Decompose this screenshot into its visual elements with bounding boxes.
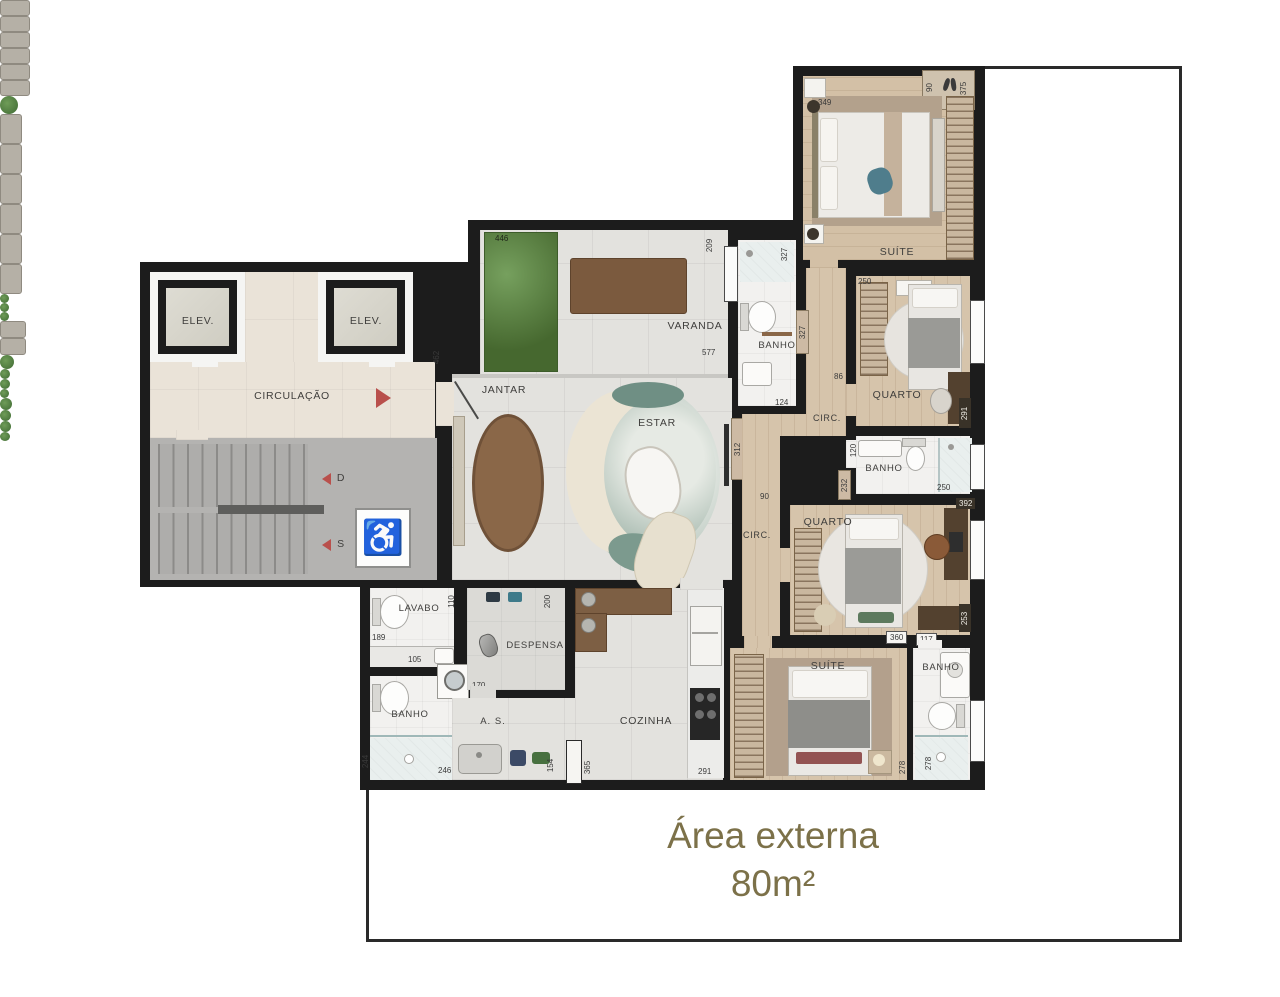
sideboard	[453, 416, 465, 546]
circulacao-label: CIRCULAÇÃO	[227, 390, 357, 402]
fridge-icon	[690, 606, 722, 666]
dimension-label: 365	[583, 754, 593, 780]
burner	[707, 710, 716, 719]
burner	[695, 693, 704, 702]
stairs-lower-flight	[158, 513, 308, 574]
corridor-top-west	[742, 414, 806, 436]
varanda-label: VARANDA	[659, 320, 731, 332]
window	[970, 700, 985, 762]
window	[970, 444, 985, 490]
sink-icon	[858, 440, 902, 457]
plant	[0, 379, 10, 389]
washer-drum	[444, 670, 465, 691]
chair	[924, 534, 950, 560]
elevator-left-label: ELEV.	[168, 315, 228, 327]
outer-boundary-right	[1179, 66, 1182, 942]
circ-mid-label: CIRC.	[734, 530, 780, 540]
faucet	[476, 752, 482, 758]
chair	[0, 264, 22, 294]
plant	[0, 432, 10, 441]
blanket	[908, 318, 960, 368]
stool	[0, 338, 26, 355]
stool	[0, 321, 26, 338]
dimension-label: 86	[834, 372, 843, 381]
suite-bottom-label: SUÍTE	[796, 660, 860, 672]
banho-bottom-right-label: BANHO	[917, 662, 965, 673]
elevator-left-door	[192, 358, 218, 367]
kitchen-sink-icon	[581, 618, 596, 633]
table-centerpiece	[0, 96, 18, 114]
dimension-label: 278	[924, 750, 934, 776]
jantar-label: JANTAR	[469, 384, 539, 396]
corridor-top	[806, 268, 846, 436]
pillow	[820, 166, 838, 210]
blanket	[845, 548, 901, 604]
monitor	[949, 532, 963, 552]
wheelchair-icon: ♿	[355, 508, 411, 568]
pouf	[814, 604, 836, 626]
dimension-label: 577	[702, 348, 715, 357]
dimension-label: 360	[886, 631, 907, 644]
banho-top-label: BANHO	[753, 340, 801, 351]
stairs-upper-flight	[158, 444, 308, 507]
stair-down-arrow-icon	[322, 473, 331, 485]
plant	[0, 421, 11, 432]
elevator-right-label: ELEV.	[336, 315, 396, 327]
pillow	[792, 670, 868, 698]
plant	[0, 303, 9, 312]
bed-bench	[796, 752, 862, 764]
outer-boundary-top	[973, 66, 1182, 69]
dimension-label: 124	[775, 398, 788, 407]
dimension-label: 327	[796, 310, 809, 354]
dining-table	[472, 414, 544, 552]
fridge-handle	[692, 632, 718, 634]
bed-runner	[884, 112, 902, 216]
storage-box	[508, 592, 522, 602]
cozinha-label: COZINHA	[611, 715, 681, 727]
lamp	[873, 754, 885, 766]
window	[724, 246, 738, 302]
nightstand	[804, 78, 826, 98]
lamp	[807, 228, 819, 240]
suite-top-label: SUÍTE	[864, 246, 930, 258]
storage-box	[486, 592, 500, 602]
stair-up-arrow-icon	[322, 539, 331, 551]
area-servico-label: A. S.	[468, 716, 518, 727]
dimension-label: 250	[937, 483, 950, 492]
bed-bench	[858, 612, 894, 623]
pillow	[912, 288, 958, 308]
sofa-cushion	[612, 382, 684, 408]
laundry-sink-icon	[458, 744, 502, 774]
pillow	[820, 118, 838, 162]
tv-panel	[724, 424, 729, 486]
drain	[936, 752, 946, 762]
dimension-label: 189	[372, 633, 385, 642]
burner	[695, 710, 704, 719]
shower-head	[746, 250, 753, 257]
dimension-label: 209	[705, 232, 715, 258]
stairs-rail	[218, 505, 324, 514]
circulation-floor-upper	[245, 272, 318, 368]
dimension-label: 253	[959, 604, 971, 632]
kitchen-sink-icon	[581, 592, 596, 607]
area-externa-line1: Área externa	[540, 812, 1006, 860]
drain	[404, 754, 414, 764]
chair	[930, 388, 952, 414]
outer-boundary-bottom	[366, 939, 1182, 942]
shower-glass	[370, 735, 454, 737]
toilet-icon	[906, 446, 925, 471]
stair-up-label: S	[334, 538, 348, 550]
estar-label: ESTAR	[627, 417, 687, 429]
dimension-label: 120	[849, 438, 858, 462]
quarto-top-door-gap	[846, 384, 856, 416]
planter	[484, 232, 558, 372]
chair	[0, 80, 30, 96]
dimension-label: 244	[361, 748, 370, 774]
chair	[0, 114, 22, 144]
despensa-label: DESPENSA	[501, 640, 569, 651]
chair	[0, 48, 30, 64]
dimension-label: 232	[838, 470, 851, 500]
outer-boundary-left	[366, 788, 369, 942]
floor-plan: ELEV. ELEV. CIRCULAÇÃO 462 ♿ D S 446 VAR…	[0, 0, 1280, 997]
suite-bottom-door-gap	[744, 636, 772, 648]
window	[970, 520, 985, 580]
plant	[0, 312, 9, 321]
toilet-icon	[928, 702, 956, 730]
dimension-label: 105	[408, 655, 421, 664]
kitchen-opening	[680, 578, 723, 590]
banho-br-door-gap	[918, 640, 942, 649]
chair	[0, 32, 30, 48]
chair	[0, 0, 30, 16]
laundry-basket	[510, 750, 526, 766]
entry-door-gap	[436, 382, 454, 426]
window	[970, 300, 985, 364]
dimension-label: 154	[546, 752, 556, 778]
dimension-label: 90	[760, 492, 769, 501]
blanket	[788, 700, 870, 748]
chair	[0, 16, 30, 32]
plant	[0, 398, 12, 410]
plant	[0, 389, 9, 398]
quarto-mid-label: QUARTO	[794, 516, 862, 528]
banho-mid-label: BANHO	[860, 463, 908, 474]
dimension-label: 110	[446, 588, 456, 614]
chair	[0, 234, 22, 264]
dimension-label: 327	[780, 241, 790, 267]
elevator-right-door	[369, 358, 395, 367]
dimension-label: 278	[898, 754, 908, 780]
entry-arrow-icon	[376, 388, 391, 408]
shower-head	[948, 444, 954, 450]
towel-rail	[762, 332, 792, 336]
circ-top-label: CIRC.	[806, 413, 848, 423]
dimension-label: 349	[818, 98, 831, 107]
lavabo-label: LAVABO	[392, 603, 446, 614]
plant	[0, 369, 10, 379]
closet	[734, 654, 764, 778]
dimension-label: 250	[858, 277, 871, 286]
toilet-icon	[956, 704, 965, 728]
area-externa-caption: Área externa 80m²	[540, 812, 1006, 908]
plant	[0, 410, 11, 421]
chair	[0, 204, 22, 234]
dimension-label: 90	[925, 76, 934, 98]
service-door	[566, 740, 582, 784]
dimension-label: 392	[956, 498, 975, 509]
suite-door-gap	[810, 258, 838, 268]
chair	[0, 174, 22, 204]
banho-bottom-left-label: BANHO	[386, 709, 434, 720]
bench	[932, 118, 945, 212]
sink-icon	[742, 362, 772, 386]
dimension-label: 291	[698, 767, 711, 776]
stairs-door-gap	[176, 430, 208, 440]
quarto-top-label: QUARTO	[863, 389, 931, 401]
dimension-label: 200	[543, 588, 553, 614]
plant	[0, 294, 9, 303]
chair	[0, 144, 22, 174]
chair	[0, 64, 30, 80]
sink-icon	[434, 648, 454, 664]
dimension-label: 462	[432, 344, 442, 370]
closet	[860, 282, 888, 376]
dimension-label: 291	[959, 398, 971, 428]
area-externa-line2: 80m²	[540, 860, 1006, 908]
quarto-mid-door-gap	[780, 548, 790, 582]
closet	[946, 96, 974, 260]
plant	[0, 355, 14, 369]
dining-table-varanda	[570, 258, 687, 314]
shower-glass	[915, 735, 968, 737]
stair-down-label: D	[334, 472, 348, 484]
dimension-label: 446	[495, 234, 508, 243]
dimension-label: 246	[438, 766, 451, 775]
toilet-icon	[748, 301, 776, 333]
burner	[707, 693, 716, 702]
